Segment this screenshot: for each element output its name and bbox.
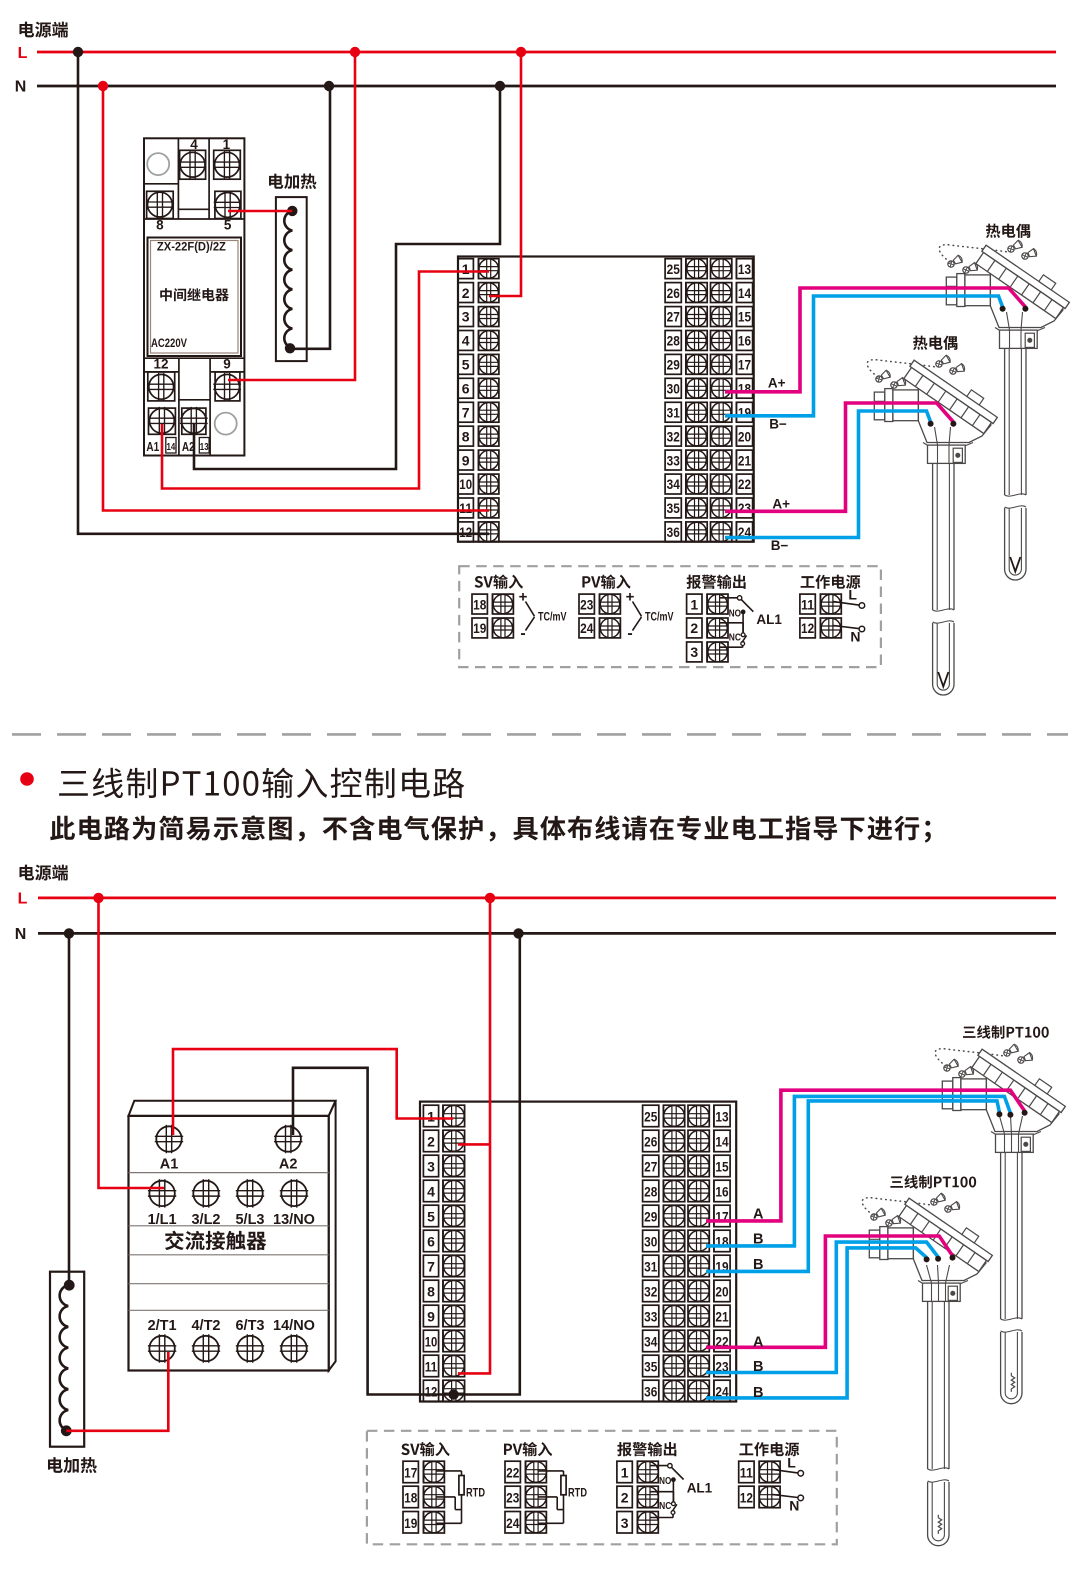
svg-text:14: 14 [738,285,751,301]
svg-text:28: 28 [667,333,680,349]
svg-text:23: 23 [580,596,593,612]
svg-text:30: 30 [667,381,680,397]
svg-text:B: B [753,1257,763,1273]
svg-text:A: A [753,1207,764,1223]
svg-text:8: 8 [462,428,470,444]
svg-text:12: 12 [801,620,814,636]
svg-text:20: 20 [738,428,751,444]
svg-text:RTD: RTD [466,1488,485,1500]
svg-text:33: 33 [644,1309,657,1325]
svg-text:5: 5 [224,218,232,233]
svg-text:N: N [789,1497,799,1513]
svg-text:30: 30 [644,1234,657,1250]
svg-text:14: 14 [715,1134,728,1150]
svg-text:TC/mV: TC/mV [538,612,567,624]
svg-text:A1: A1 [160,1157,179,1173]
svg-text:1: 1 [690,596,698,612]
svg-text:B: B [753,1359,763,1375]
svg-text:22: 22 [506,1465,519,1481]
svg-text:3: 3 [690,644,698,660]
svg-text:18: 18 [404,1490,417,1506]
svg-text:12: 12 [740,1490,753,1506]
svg-text:11: 11 [801,596,814,612]
svg-text:12: 12 [459,524,472,540]
svg-text:11: 11 [425,1359,438,1375]
svg-text:NC: NC [659,1500,672,1512]
svg-text:34: 34 [644,1334,657,1350]
svg-text:AL1: AL1 [756,612,782,627]
svg-text:A+: A+ [772,496,790,511]
svg-text:N: N [850,629,860,645]
svg-text:32: 32 [667,428,680,444]
svg-text:36: 36 [644,1384,657,1400]
svg-text:29: 29 [667,357,680,373]
svg-text:13: 13 [200,441,209,453]
svg-text:4/T2: 4/T2 [191,1318,220,1334]
svg-text:10: 10 [425,1334,438,1350]
svg-text:8: 8 [156,218,164,233]
svg-text:16: 16 [715,1184,728,1200]
svg-text:6: 6 [427,1234,435,1250]
svg-text:11: 11 [459,500,472,516]
svg-text:23: 23 [738,500,751,516]
svg-text:26: 26 [667,285,680,301]
svg-text:1: 1 [223,137,231,152]
svg-text:2: 2 [621,1490,629,1506]
svg-text:18: 18 [473,596,486,612]
svg-text:9: 9 [427,1309,435,1325]
svg-text:14/NO: 14/NO [273,1318,315,1334]
svg-text:NO: NO [729,607,741,619]
svg-text:32: 32 [644,1284,657,1300]
svg-text:B: B [753,1232,763,1248]
svg-text:28: 28 [644,1184,657,1200]
svg-text:36: 36 [667,524,680,540]
svg-text:6: 6 [462,381,470,397]
svg-text:15: 15 [715,1159,728,1175]
svg-text:24: 24 [506,1515,519,1531]
svg-text:4: 4 [190,137,198,152]
svg-text:A2: A2 [279,1157,298,1173]
svg-text:L: L [18,45,28,62]
svg-text:3/L2: 3/L2 [191,1212,220,1228]
svg-text:12: 12 [425,1384,438,1400]
svg-text:35: 35 [667,500,680,516]
svg-text:5/L3: 5/L3 [235,1212,264,1228]
svg-text:B: B [753,1385,763,1401]
svg-text:21: 21 [715,1309,728,1325]
svg-text:27: 27 [667,309,680,325]
svg-text:B−: B− [771,538,789,553]
svg-text:7: 7 [462,404,470,420]
svg-text:16: 16 [738,333,751,349]
svg-text:21: 21 [738,452,751,468]
svg-text:1: 1 [462,261,470,277]
svg-text:17: 17 [404,1465,417,1481]
svg-text:AL1: AL1 [687,1481,713,1496]
svg-text:17: 17 [738,357,751,373]
svg-text:B−: B− [769,416,787,431]
svg-text:A: A [753,1334,764,1350]
svg-text:19: 19 [473,620,486,636]
svg-text:9: 9 [462,452,470,468]
svg-text:15: 15 [738,309,751,325]
svg-text:34: 34 [667,476,680,492]
svg-text:4: 4 [427,1184,435,1200]
svg-text:13: 13 [715,1109,728,1125]
svg-text:29: 29 [644,1209,657,1225]
svg-text:N: N [15,79,27,96]
svg-text:8: 8 [427,1284,435,1300]
svg-text:19: 19 [738,404,751,420]
svg-text:2: 2 [462,285,470,301]
svg-text:25: 25 [644,1109,657,1125]
svg-text:1: 1 [621,1465,629,1481]
svg-text:33: 33 [667,452,680,468]
svg-text:23: 23 [506,1490,519,1506]
svg-text:A1: A1 [146,440,159,454]
svg-text:24: 24 [580,620,593,636]
svg-text:4: 4 [462,333,470,349]
svg-text:NO: NO [659,1475,671,1487]
svg-text:5: 5 [462,357,470,373]
svg-text:N: N [15,926,27,943]
svg-text:L: L [787,1454,796,1470]
svg-text:3: 3 [462,309,470,325]
svg-text:L: L [848,587,857,603]
svg-text:10: 10 [459,476,472,492]
svg-text:A+: A+ [768,375,786,390]
svg-text:27: 27 [644,1159,657,1175]
svg-text:2/T1: 2/T1 [148,1318,177,1334]
svg-text:20: 20 [715,1284,728,1300]
svg-text:13: 13 [738,261,751,277]
svg-text:5: 5 [427,1209,435,1225]
svg-text:-: - [627,625,632,642]
svg-text:NC: NC [729,631,742,643]
svg-text:ZX-22F(D)/2Z: ZX-22F(D)/2Z [157,242,226,254]
svg-text:9: 9 [223,357,231,372]
svg-text:3: 3 [427,1159,435,1175]
svg-text:2: 2 [427,1134,435,1150]
svg-text:13/NO: 13/NO [273,1212,315,1228]
svg-text:22: 22 [738,476,751,492]
svg-text:25: 25 [667,261,680,277]
svg-text:TC/mV: TC/mV [645,612,674,624]
svg-text:11: 11 [740,1465,753,1481]
svg-text:2: 2 [690,620,698,636]
svg-text:14: 14 [167,441,176,453]
svg-text:RTD: RTD [568,1488,587,1500]
svg-text:1: 1 [427,1109,435,1125]
svg-text:1/L1: 1/L1 [148,1212,177,1228]
svg-text:AC220V: AC220V [151,338,187,350]
svg-text:7: 7 [427,1259,435,1275]
svg-text:12: 12 [153,357,168,372]
svg-text:19: 19 [404,1515,417,1531]
svg-text:3: 3 [621,1515,629,1531]
svg-text:31: 31 [644,1259,657,1275]
svg-text:26: 26 [644,1134,657,1150]
svg-text:35: 35 [644,1359,657,1375]
svg-text:18: 18 [738,381,751,397]
svg-text:-: - [520,625,525,642]
svg-text:31: 31 [667,404,680,420]
svg-text:L: L [18,891,28,908]
svg-text:6/T3: 6/T3 [235,1318,264,1334]
